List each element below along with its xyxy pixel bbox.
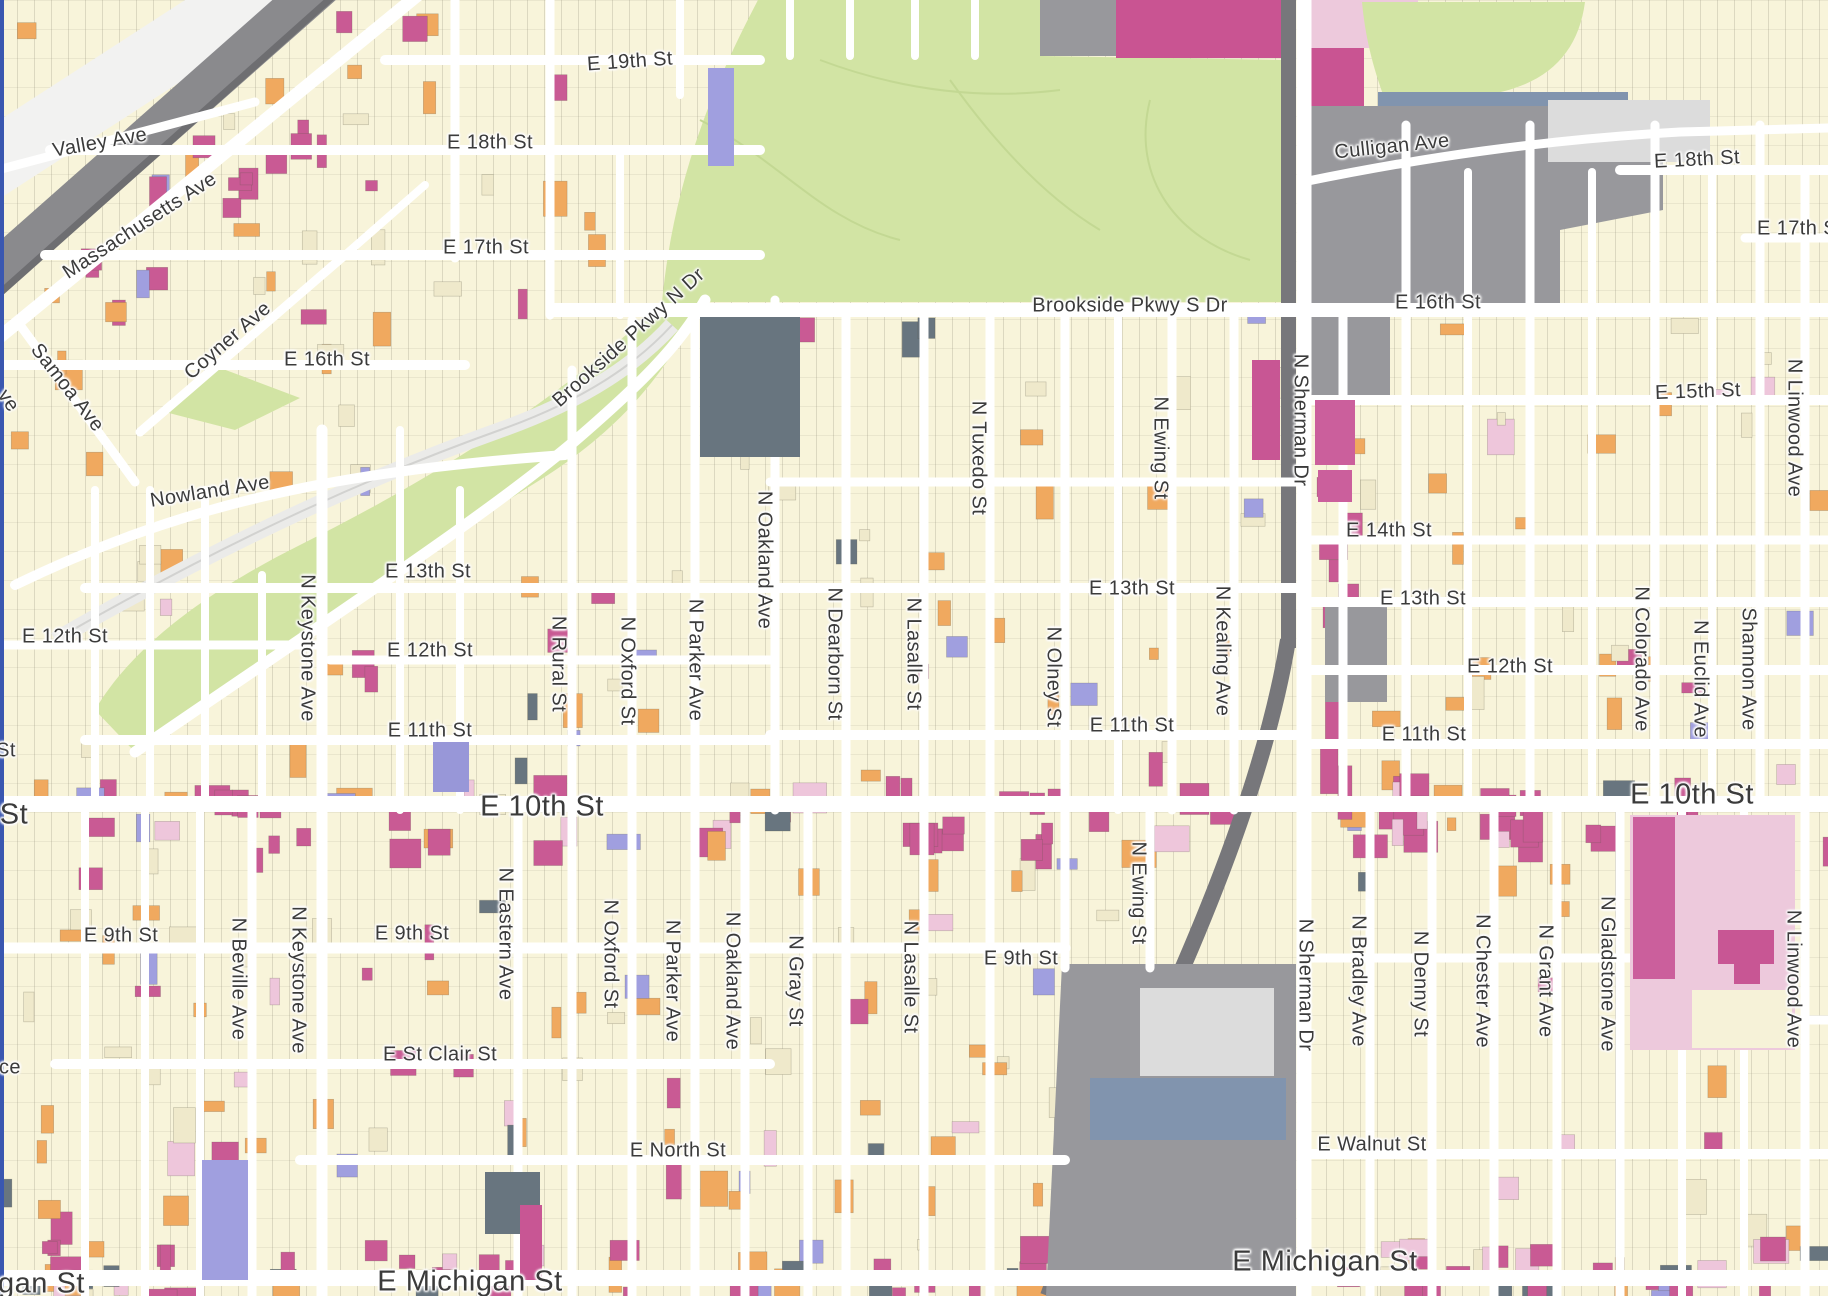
- industrial-block: [1040, 0, 1116, 56]
- map-canvas[interactable]: Valley AveMassachusetts AveSamoa AveveCo…: [0, 0, 1828, 1296]
- factory-parcel: [700, 317, 800, 457]
- commercial-block: [1116, 0, 1283, 58]
- map-graphics: [0, 0, 1828, 1296]
- steel-blue-parcel: [1090, 1078, 1286, 1140]
- railroad-sherman: [1281, 0, 1296, 648]
- map-edge-line: [0, 0, 4, 1296]
